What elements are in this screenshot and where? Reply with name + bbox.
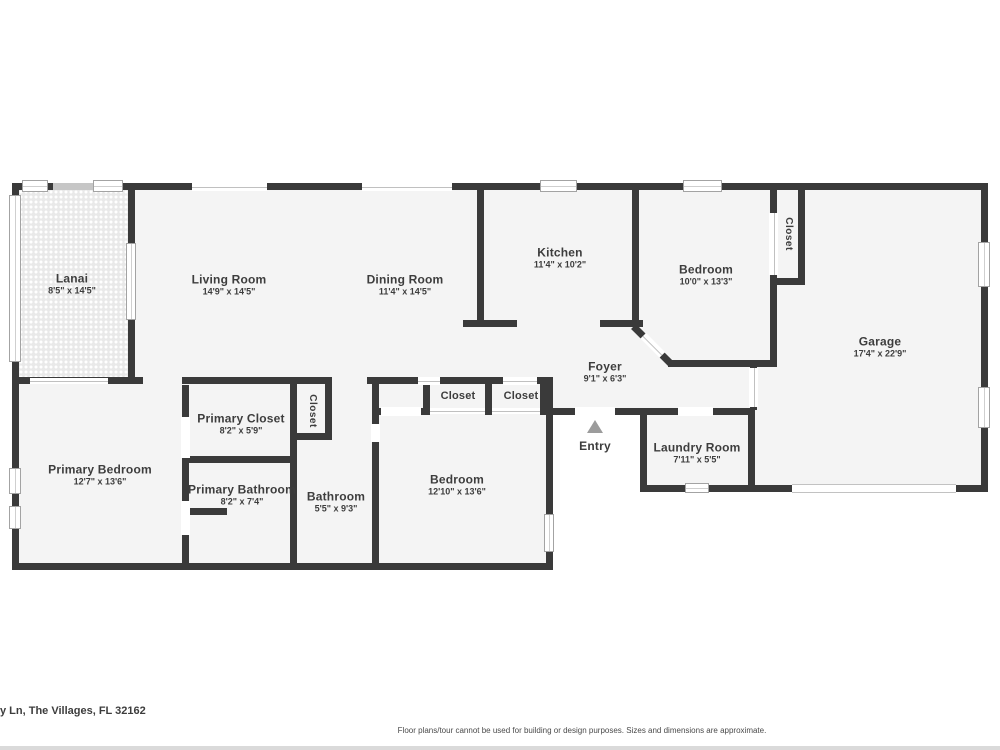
room-dims: 11'4" x 14'5" [367,287,444,298]
window [93,180,123,192]
room-dims: 17'4" x 22'9" [854,349,907,360]
door [749,368,758,407]
footer-divider [0,746,1000,750]
door-opening [575,407,615,416]
wall [477,190,484,320]
room-label-bedroom-3: Bedroom 12'10" x 13'6" [428,473,486,498]
room-label-bedroom-2: Bedroom 10'0" x 13'3" [679,263,733,288]
wall [981,183,988,492]
door-opening [381,407,421,416]
room-label-foyer: Foyer 9'1" x 6'3" [584,360,627,385]
room-label-bedroom-3-closet: Closet [441,389,476,403]
wall [325,377,332,440]
room-label-primary-closet: Primary Closet 8'2" x 5'9" [197,412,285,437]
room-name: Kitchen [534,246,586,260]
wall [798,190,805,285]
room-dims: 9'1" x 6'3" [584,374,627,385]
wall [189,508,227,515]
room-name: Primary Bathroom [188,483,296,497]
room-label-hall-closet: Closet [305,394,319,428]
wall [182,456,297,463]
garage-door [792,484,956,493]
room-name: Closet [781,217,795,251]
room-dims: 12'7" x 13'6" [48,477,152,488]
room-label-bathroom: Bathroom 5'5" x 9'3" [307,490,365,515]
floor-plan-page: Lanai 8'5" x 14'5" Living Room 14'9" x 1… [0,0,1000,750]
wall [423,383,430,415]
window [192,182,267,191]
room-name: Closet [441,389,476,403]
wall [463,320,517,327]
wall [297,433,332,440]
wall [182,377,330,384]
room-label-garage: Garage 17'4" x 22'9" [854,335,907,360]
room-label-primary-bathroom: Primary Bathroom 8'2" x 7'4" [188,483,296,508]
room-label-dining-room: Dining Room 11'4" x 14'5" [367,273,444,298]
room-name: Primary Closet [197,412,285,426]
window [540,180,577,192]
room-name: Entry [579,439,611,453]
room-label-entry: Entry [579,439,611,453]
room-label-kitchen: Kitchen 11'4" x 10'2" [534,246,586,271]
window [126,243,136,320]
door-opening [371,424,380,442]
room-name: Lanai [48,272,96,286]
room-name: Bathroom [307,490,365,504]
window [9,506,21,529]
wall [748,408,755,492]
door-opening [181,417,190,458]
wall [640,415,647,492]
closet-door [430,408,485,414]
room-dims: 8'5" x 14'5" [48,286,96,297]
wall [632,190,639,323]
room-dims: 8'2" x 7'4" [188,497,296,508]
wall [12,183,988,190]
window [9,468,21,494]
sliding-door [30,378,108,384]
closet-door [492,408,540,414]
room-name: Living Room [192,273,267,287]
disclaimer-text: Floor plans/tour cannot be used for buil… [398,726,767,735]
room-label-hall-closet-2: Closet [504,389,539,403]
room-label-bedroom-2-closet: Closet [781,217,795,251]
room-name: Bedroom [428,473,486,487]
room-dims: 5'5" x 9'3" [307,504,365,515]
room-dims: 7'11" x 5'5" [653,455,740,466]
window [9,195,21,362]
room-name: Primary Bedroom [48,463,152,477]
window [978,242,990,287]
room-label-primary-bedroom: Primary Bedroom 12'7" x 13'6" [48,463,152,488]
closet-door [769,213,778,275]
door-opening [678,407,713,416]
room-dims: 11'4" x 10'2" [534,260,586,271]
wall [770,278,805,285]
room-name: Closet [504,389,539,403]
room-dims: 12'10" x 13'6" [428,487,486,498]
sliding-door [503,377,537,385]
room-name: Garage [854,335,907,349]
room-dims: 8'2" x 5'9" [197,426,285,437]
window [685,483,709,493]
room-label-laundry-room: Laundry Room 7'11" x 5'5" [653,441,740,466]
room-label-living-room: Living Room 14'9" x 14'5" [192,273,267,298]
wall [540,383,547,415]
room-name: Laundry Room [653,441,740,455]
room-name: Foyer [584,360,627,374]
room-dims: 14'9" x 14'5" [192,287,267,298]
address-text: y Ln, The Villages, FL 32162 [0,705,146,717]
room-dims: 10'0" x 13'3" [679,277,733,288]
room-label-lanai: Lanai 8'5" x 14'5" [48,272,96,297]
wall [290,377,297,570]
wall [485,383,492,415]
sliding-door [418,377,440,385]
room-name: Closet [305,394,319,428]
window [683,180,722,192]
window [978,387,990,428]
window [544,514,554,552]
lanai-screen-wall [53,183,93,190]
wall [12,563,553,570]
room-name: Dining Room [367,273,444,287]
wall [372,377,379,570]
window [362,182,452,191]
room-name: Bedroom [679,263,733,277]
wall [668,360,777,367]
window [22,180,48,192]
entry-arrow-icon [587,420,603,433]
